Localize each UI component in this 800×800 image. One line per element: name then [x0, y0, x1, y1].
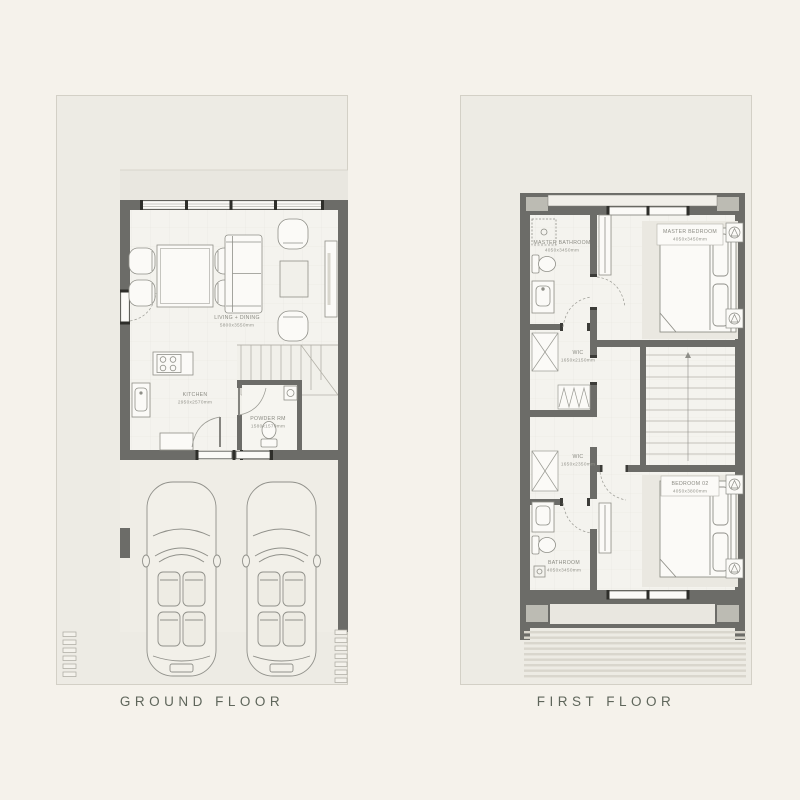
- armchair: [278, 219, 308, 249]
- car: [143, 482, 221, 676]
- window-strip: [140, 200, 324, 210]
- wic1-label: WIC: [573, 350, 584, 356]
- living-dining-dims: 5800x3550mm: [220, 323, 254, 328]
- car: [243, 482, 321, 676]
- powder-room-label: POWDER RM: [250, 416, 286, 422]
- kitchen-label: KITCHEN: [183, 392, 208, 398]
- coffee-table: [280, 261, 308, 297]
- bedroom02-label: BEDROOM 02: [671, 481, 708, 487]
- tv: [328, 253, 331, 305]
- wic2-dims: 1650x2350mm: [561, 462, 595, 467]
- ac-icon: [726, 475, 743, 494]
- first-floor-plan: MASTER BATHROOM 4050x3450mm MASTER BEDRO…: [460, 95, 752, 685]
- first-floor-title: FIRST FLOOR: [460, 694, 752, 709]
- ground-floor-plan: LIVING + DINING 5800x3550mm KITCHEN 2950…: [56, 95, 348, 685]
- tv-console: [325, 241, 337, 317]
- chair: [129, 248, 155, 274]
- gate-pillar: [120, 528, 130, 558]
- toilet-icon: [532, 536, 539, 554]
- armchair: [278, 311, 308, 341]
- toilet-icon: [532, 255, 539, 273]
- powder-room: [237, 380, 302, 450]
- sofa: [225, 235, 262, 313]
- first-floor-svg: MASTER BATHROOM 4050x3450mm MASTER BEDRO…: [460, 95, 752, 685]
- base-cabinet: [160, 433, 193, 450]
- master-bathroom-label: MASTER BATHROOM: [533, 240, 590, 246]
- ac-icon: [726, 309, 743, 328]
- sink-icon: [284, 386, 297, 400]
- master-bedroom-label: MASTER BEDROOM: [663, 229, 717, 235]
- ac-icon: [726, 559, 743, 578]
- pergola-louvres: [524, 631, 746, 677]
- master-bathroom-dims: 4050x3450mm: [545, 248, 579, 253]
- ground-floor-title: GROUND FLOOR: [56, 694, 348, 709]
- bathroom-label: BATHROOM: [548, 560, 580, 566]
- ground-floor-svg: LIVING + DINING 5800x3550mm KITCHEN 2950…: [56, 95, 348, 685]
- garage-door: [196, 450, 274, 460]
- wic2-label: WIC: [573, 454, 584, 460]
- powder-room-dims: 1580x1570mm: [251, 424, 285, 429]
- living-dining-label: LIVING + DINING: [214, 315, 260, 321]
- chair: [129, 280, 155, 306]
- bedroom02-dims: 4050x3800mm: [673, 489, 707, 494]
- ac-icon: [726, 223, 743, 242]
- dining-table: [157, 245, 213, 307]
- wic1-dims: 1650x2150mm: [561, 358, 595, 363]
- master-bedroom-dims: 4050x3450mm: [673, 237, 707, 242]
- kitchen-dims: 2950x2570mm: [178, 400, 212, 405]
- bathroom-dims: 4050x3450mm: [547, 568, 581, 573]
